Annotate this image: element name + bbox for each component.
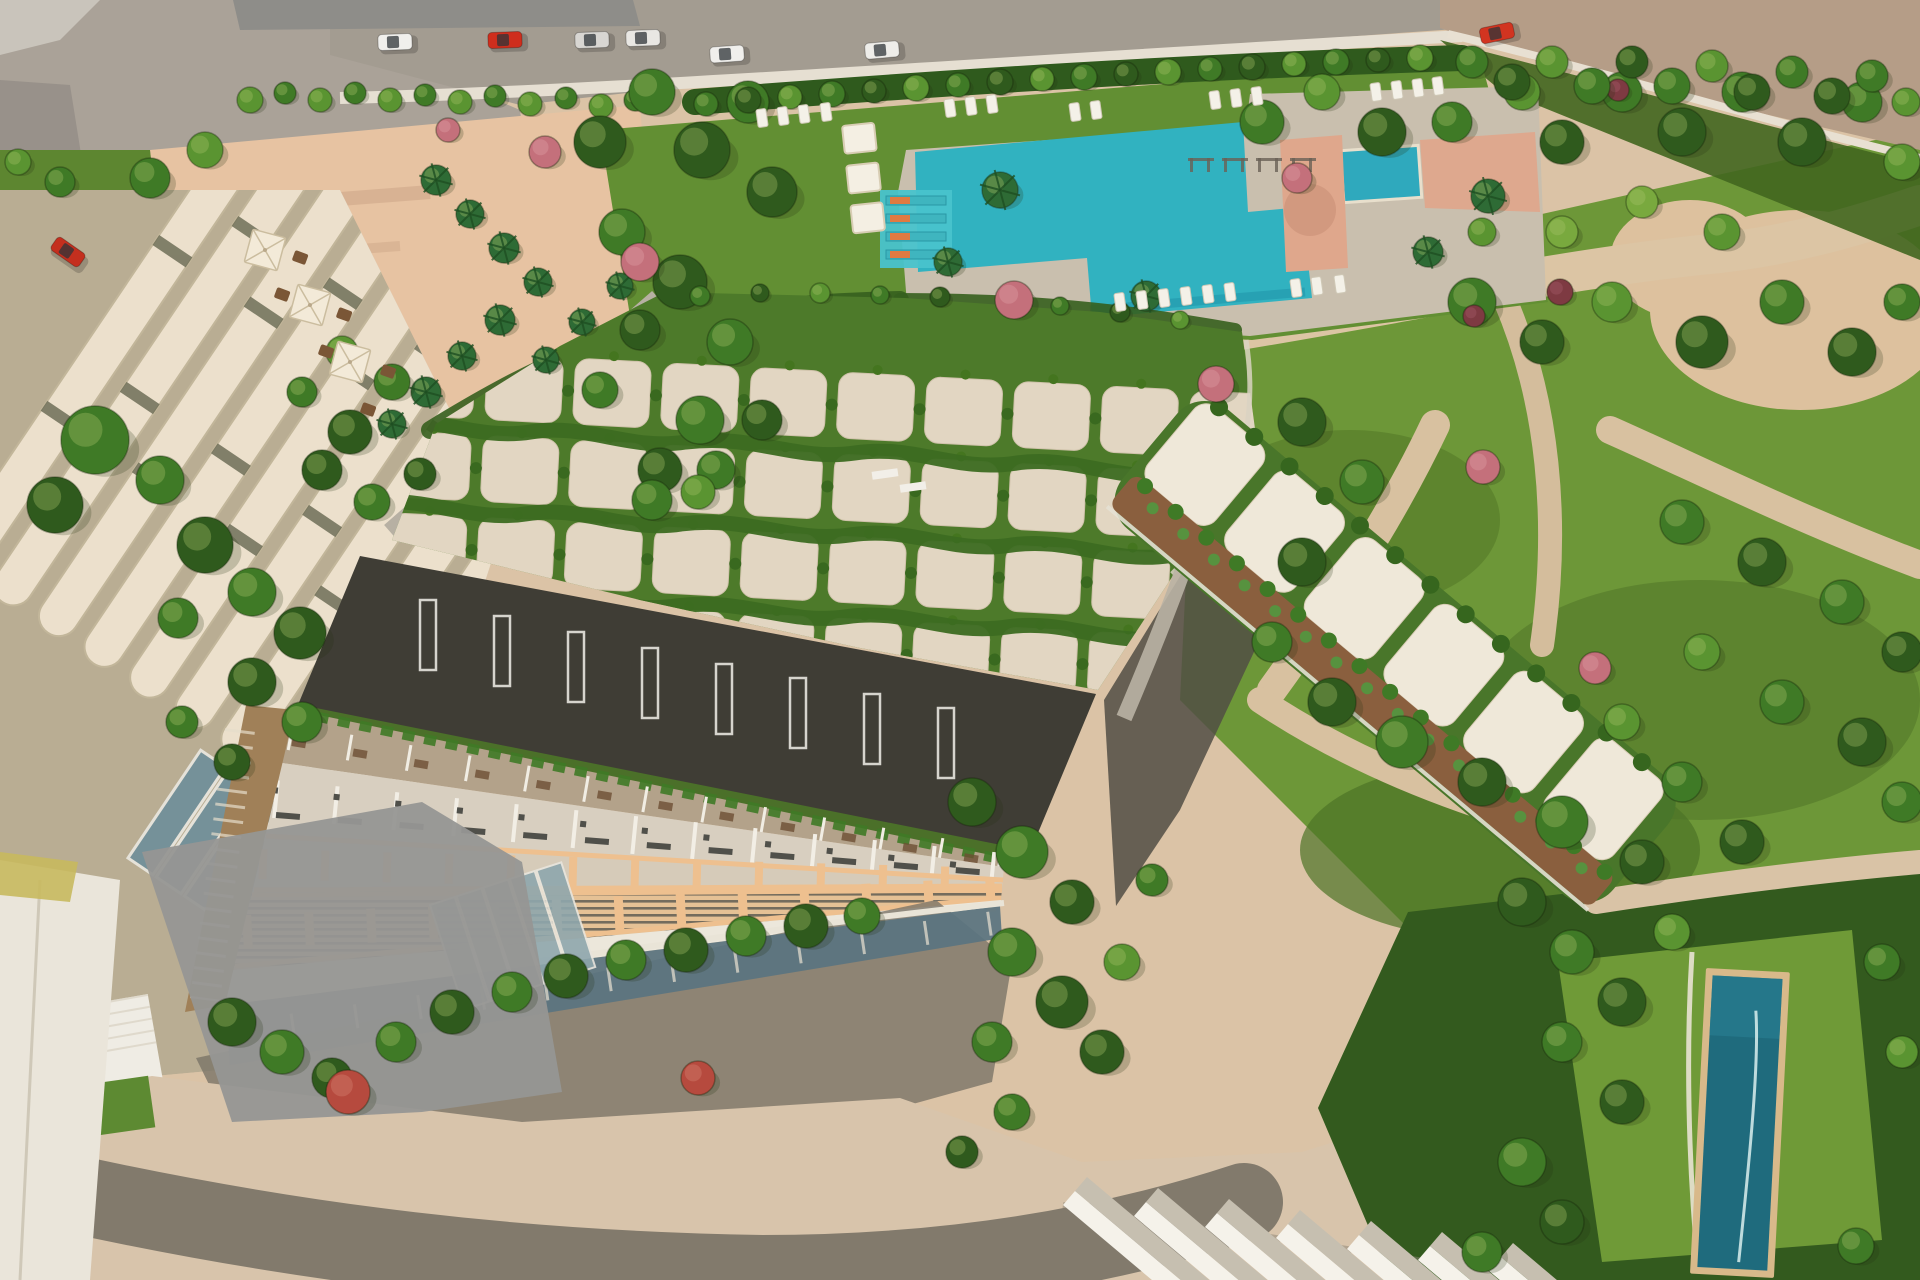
sun-lounger bbox=[820, 102, 832, 121]
roof-panel bbox=[564, 522, 643, 592]
tree-highlight bbox=[730, 920, 750, 940]
tree-highlight bbox=[1888, 288, 1906, 306]
tree-highlight bbox=[1860, 63, 1876, 79]
tree-highlight bbox=[624, 314, 644, 334]
tree-highlight bbox=[1886, 636, 1906, 656]
tree-highlight bbox=[1055, 884, 1077, 906]
tree-highlight bbox=[170, 709, 186, 725]
sun-lounger bbox=[944, 98, 956, 117]
roof-panel bbox=[924, 377, 1003, 447]
sun-lounger bbox=[1230, 88, 1242, 107]
tree-highlight bbox=[753, 172, 778, 197]
shower-post bbox=[1275, 158, 1278, 172]
tree-highlight bbox=[1002, 831, 1028, 857]
tree-highlight bbox=[1868, 948, 1886, 966]
tree-highlight bbox=[580, 121, 606, 147]
tree-highlight bbox=[1498, 68, 1516, 86]
car-windshield bbox=[497, 34, 509, 46]
tree-highlight bbox=[533, 139, 549, 155]
sun-lounger bbox=[798, 104, 810, 123]
tree-highlight bbox=[1345, 464, 1367, 486]
tree-highlight bbox=[990, 72, 1003, 85]
tree-highlight bbox=[1663, 113, 1687, 137]
tree-highlight bbox=[134, 162, 154, 182]
sun-lounger bbox=[756, 108, 768, 127]
tree-highlight bbox=[1410, 48, 1423, 61]
tree-highlight bbox=[1202, 370, 1220, 388]
tree-highlight bbox=[848, 902, 866, 920]
tree-highlight bbox=[604, 214, 627, 237]
car bbox=[626, 29, 667, 50]
sun-lounger bbox=[1090, 100, 1102, 119]
tree-highlight bbox=[1546, 1026, 1566, 1046]
tree-highlight bbox=[1158, 62, 1171, 75]
tree-highlight bbox=[949, 75, 961, 87]
car-windshield bbox=[1488, 26, 1502, 40]
sun-lounger bbox=[944, 98, 956, 117]
roof-panel bbox=[652, 527, 731, 597]
shower-post bbox=[1241, 158, 1244, 172]
tree-highlight bbox=[681, 401, 705, 425]
tree-highlight bbox=[1245, 104, 1267, 126]
sun-lounger bbox=[1290, 278, 1302, 297]
sun-lounger bbox=[1290, 278, 1302, 297]
tree-highlight bbox=[1583, 655, 1599, 671]
tree-highlight bbox=[753, 286, 762, 295]
tree-highlight bbox=[685, 478, 702, 495]
sun-lounger bbox=[1158, 288, 1170, 307]
sun-lounger bbox=[1311, 276, 1323, 295]
tree-highlight bbox=[1042, 981, 1068, 1007]
shower-post bbox=[1190, 158, 1193, 172]
sun-lounger bbox=[1136, 290, 1148, 309]
tree-highlight bbox=[636, 484, 656, 504]
tree-highlight bbox=[1603, 983, 1627, 1007]
tree-highlight bbox=[1540, 49, 1556, 65]
tree-highlight bbox=[1743, 543, 1767, 567]
sun-lounger bbox=[1069, 102, 1081, 121]
tree-highlight bbox=[240, 90, 253, 103]
sun-lounger bbox=[1412, 78, 1424, 97]
tree-highlight bbox=[822, 84, 835, 97]
aerial-architectural-render bbox=[0, 0, 1920, 1280]
tree-highlight bbox=[1363, 113, 1387, 137]
shower-post bbox=[1207, 158, 1210, 172]
shelf-cushion bbox=[890, 197, 910, 204]
tree-highlight bbox=[1596, 286, 1616, 306]
tree-highlight bbox=[218, 748, 236, 766]
sun-lounger bbox=[1391, 80, 1403, 99]
roof-panel bbox=[832, 454, 911, 524]
sun-lounger bbox=[1334, 274, 1346, 293]
tree-highlight bbox=[1283, 403, 1307, 427]
tree-highlight bbox=[1658, 72, 1676, 90]
tree-highlight bbox=[669, 932, 691, 954]
tree-highlight bbox=[1465, 307, 1476, 318]
tree-highlight bbox=[141, 461, 165, 485]
tree-highlight bbox=[1665, 504, 1687, 526]
tree-highlight bbox=[1285, 166, 1300, 181]
sun-lounger bbox=[965, 96, 977, 115]
sun-lounger bbox=[1209, 90, 1221, 109]
tree-highlight bbox=[331, 1074, 353, 1096]
tree-highlight bbox=[1783, 123, 1807, 147]
tree-highlight bbox=[953, 783, 977, 807]
tree-highlight bbox=[950, 1139, 966, 1155]
tree-highlight bbox=[1140, 867, 1156, 883]
tree-highlight bbox=[435, 994, 457, 1016]
car-windshield bbox=[635, 32, 647, 44]
sun-lounger bbox=[986, 94, 998, 113]
tree-highlight bbox=[290, 380, 305, 395]
tree-highlight bbox=[701, 455, 720, 474]
shower-post bbox=[1258, 158, 1261, 172]
tree-highlight bbox=[1313, 683, 1337, 707]
tree-highlight bbox=[586, 376, 604, 394]
tree-highlight bbox=[643, 452, 665, 474]
roof-panel bbox=[480, 435, 559, 505]
tree-highlight bbox=[1201, 59, 1213, 71]
shelf-cushion bbox=[890, 251, 910, 258]
tree-highlight bbox=[1620, 49, 1636, 65]
tree-highlight bbox=[993, 933, 1017, 957]
lap-pool bbox=[1690, 968, 1790, 1278]
tree-highlight bbox=[1666, 766, 1686, 786]
sun-lounger bbox=[1209, 90, 1221, 109]
shelf-cushion bbox=[890, 233, 910, 240]
tree-highlight bbox=[1108, 948, 1126, 966]
tree-highlight bbox=[486, 87, 497, 98]
water-shade bbox=[1709, 975, 1782, 1039]
tree-highlight bbox=[712, 324, 735, 347]
tree-highlight bbox=[1688, 638, 1706, 656]
tree-highlight bbox=[976, 1026, 996, 1046]
car-windshield bbox=[874, 44, 887, 57]
sun-lounger bbox=[756, 108, 768, 127]
tree-highlight bbox=[1326, 52, 1339, 65]
sun-lounger bbox=[1370, 82, 1382, 101]
tree-highlight bbox=[496, 976, 516, 996]
sun-lounger bbox=[1311, 276, 1323, 295]
tree-highlight bbox=[8, 152, 21, 165]
tree-highlight bbox=[233, 663, 257, 687]
tree-highlight bbox=[1369, 50, 1381, 62]
sun-lounger bbox=[1224, 282, 1236, 301]
tree-highlight bbox=[380, 1026, 400, 1046]
tree-highlight bbox=[333, 414, 355, 436]
sun-lounger bbox=[1224, 282, 1236, 301]
tree-highlight bbox=[781, 87, 793, 99]
sun-lounger bbox=[1432, 76, 1444, 95]
tree-highlight bbox=[1578, 72, 1596, 90]
sun-lounger bbox=[777, 106, 789, 125]
tree-highlight bbox=[1545, 1204, 1567, 1226]
car bbox=[864, 40, 906, 63]
cabana bbox=[850, 202, 885, 233]
site-plan-canvas bbox=[0, 0, 1920, 1280]
tree-highlight bbox=[906, 78, 919, 91]
tree-highlight bbox=[1117, 64, 1129, 76]
sun-lounger bbox=[1391, 80, 1403, 99]
tree-highlight bbox=[280, 612, 306, 638]
sun-lounger bbox=[798, 104, 810, 123]
sun-lounger bbox=[1114, 292, 1126, 311]
tree-highlight bbox=[812, 285, 822, 295]
tree-highlight bbox=[1725, 824, 1747, 846]
tree-highlight bbox=[48, 170, 63, 185]
tree-highlight bbox=[697, 94, 709, 106]
tree-highlight bbox=[1895, 91, 1909, 105]
tree-highlight bbox=[1738, 78, 1756, 96]
sun-lounger bbox=[1180, 286, 1192, 305]
car bbox=[575, 31, 616, 52]
sun-lounger bbox=[1412, 78, 1424, 97]
sun-lounger bbox=[986, 94, 998, 113]
tree-highlight bbox=[311, 90, 323, 102]
tree-highlight bbox=[33, 483, 61, 511]
tree-highlight bbox=[592, 96, 604, 108]
tree-highlight bbox=[265, 1034, 287, 1056]
sun-lounger bbox=[1370, 82, 1382, 101]
tree-highlight bbox=[1555, 934, 1577, 956]
tree-highlight bbox=[549, 958, 571, 980]
tree-highlight bbox=[692, 288, 702, 298]
tree-highlight bbox=[1833, 333, 1857, 357]
tree-highlight bbox=[865, 81, 877, 93]
tree-highlight bbox=[1658, 918, 1676, 936]
tree-highlight bbox=[873, 288, 882, 297]
roof-panel bbox=[827, 536, 906, 606]
tree-highlight bbox=[346, 84, 357, 95]
tree-highlight bbox=[1525, 324, 1547, 346]
tree-highlight bbox=[451, 92, 463, 104]
car-windshield bbox=[719, 48, 732, 61]
sun-lounger bbox=[1230, 88, 1242, 107]
tree-highlight bbox=[381, 90, 393, 102]
north-building-slab bbox=[233, 0, 640, 30]
tree-highlight bbox=[1453, 283, 1477, 307]
tree-highlight bbox=[1843, 723, 1867, 747]
tree-highlight bbox=[685, 1064, 702, 1081]
tree-highlight bbox=[68, 413, 102, 447]
tree-highlight bbox=[932, 289, 942, 299]
tree-highlight bbox=[1173, 313, 1182, 322]
sun-lounger bbox=[1334, 274, 1346, 293]
tree-highlight bbox=[1890, 1039, 1906, 1055]
sun-lounger bbox=[1180, 286, 1192, 305]
sun-lounger bbox=[820, 102, 832, 121]
cabana bbox=[846, 162, 881, 193]
tree-highlight bbox=[1436, 106, 1456, 126]
tree-highlight bbox=[1605, 1084, 1627, 1106]
tree-highlight bbox=[439, 120, 451, 132]
sun-lounger bbox=[1158, 288, 1170, 307]
tree-highlight bbox=[191, 136, 209, 154]
tree-highlight bbox=[1780, 59, 1796, 75]
tree-highlight bbox=[1842, 1232, 1860, 1250]
tree-highlight bbox=[1503, 1143, 1527, 1167]
tree-highlight bbox=[610, 944, 630, 964]
tree-highlight bbox=[746, 404, 766, 424]
tree-highlight bbox=[1550, 282, 1563, 295]
car bbox=[378, 33, 419, 54]
tree-highlight bbox=[416, 86, 427, 97]
tree-highlight bbox=[1308, 78, 1326, 96]
tree-highlight bbox=[557, 89, 568, 100]
tree-highlight bbox=[1682, 321, 1708, 347]
tree-highlight bbox=[213, 1003, 237, 1027]
tree-highlight bbox=[1503, 883, 1527, 907]
tree-highlight bbox=[1242, 57, 1255, 70]
sun-lounger bbox=[1251, 86, 1263, 105]
sun-lounger bbox=[1136, 290, 1148, 309]
sun-lounger bbox=[1069, 102, 1081, 121]
tree-highlight bbox=[358, 488, 376, 506]
tree-highlight bbox=[1463, 763, 1487, 787]
shower-post bbox=[1224, 158, 1227, 172]
tree-highlight bbox=[1630, 189, 1646, 205]
tree-highlight bbox=[276, 84, 287, 95]
tree-highlight bbox=[1470, 453, 1487, 470]
tree-highlight bbox=[1818, 82, 1836, 100]
tree-highlight bbox=[1886, 786, 1906, 806]
tree-highlight bbox=[1085, 1034, 1107, 1056]
tree-highlight bbox=[1765, 284, 1787, 306]
tree-highlight bbox=[521, 94, 533, 106]
sun-lounger bbox=[1114, 292, 1126, 311]
tree-highlight bbox=[789, 908, 811, 930]
tree-highlight bbox=[1542, 801, 1568, 827]
tree-highlight bbox=[1888, 148, 1906, 166]
sun-lounger bbox=[1202, 284, 1214, 303]
tree-highlight bbox=[1608, 708, 1626, 726]
tree-highlight bbox=[1466, 1236, 1486, 1256]
car bbox=[488, 31, 529, 52]
roof-panel bbox=[1012, 381, 1091, 451]
tree-highlight bbox=[999, 285, 1018, 304]
car-windshield bbox=[387, 36, 399, 48]
tree-highlight bbox=[1285, 54, 1297, 66]
sun-lounger bbox=[1251, 86, 1263, 105]
tree-highlight bbox=[738, 90, 751, 103]
tree-highlight bbox=[233, 573, 257, 597]
sun-lounger bbox=[965, 96, 977, 115]
tree-highlight bbox=[998, 1098, 1016, 1116]
cabana bbox=[842, 123, 877, 154]
tree-highlight bbox=[1471, 221, 1485, 235]
tree-highlight bbox=[1765, 684, 1787, 706]
tree-highlight bbox=[680, 128, 708, 156]
roof-panel bbox=[836, 372, 915, 442]
tree-highlight bbox=[1700, 53, 1716, 69]
roof-panel bbox=[1003, 545, 1082, 615]
tree-highlight bbox=[408, 461, 424, 477]
sun-lounger bbox=[1090, 100, 1102, 119]
tree-highlight bbox=[1625, 844, 1647, 866]
tree-highlight bbox=[162, 602, 182, 622]
tree-highlight bbox=[1053, 299, 1062, 308]
tree-highlight bbox=[1460, 49, 1476, 65]
tree-highlight bbox=[1545, 124, 1567, 146]
sun-lounger bbox=[1432, 76, 1444, 95]
shelf-cushion bbox=[890, 215, 910, 222]
car bbox=[709, 44, 750, 67]
tree-highlight bbox=[1382, 721, 1408, 747]
roof-panel bbox=[1007, 463, 1086, 533]
tree-highlight bbox=[634, 74, 657, 97]
tree-highlight bbox=[183, 523, 211, 551]
tree-highlight bbox=[1283, 543, 1307, 567]
tree-highlight bbox=[1033, 69, 1045, 81]
tree-highlight bbox=[306, 454, 326, 474]
tree-highlight bbox=[1256, 626, 1276, 646]
tree-highlight bbox=[1708, 218, 1726, 236]
sun-lounger bbox=[1202, 284, 1214, 303]
tree-highlight bbox=[1825, 584, 1847, 606]
tree-highlight bbox=[286, 706, 306, 726]
sun-lounger bbox=[777, 106, 789, 125]
car-windshield bbox=[584, 34, 596, 46]
tree-highlight bbox=[1550, 219, 1566, 235]
tree-highlight bbox=[625, 247, 644, 266]
tree-highlight bbox=[1074, 67, 1087, 80]
